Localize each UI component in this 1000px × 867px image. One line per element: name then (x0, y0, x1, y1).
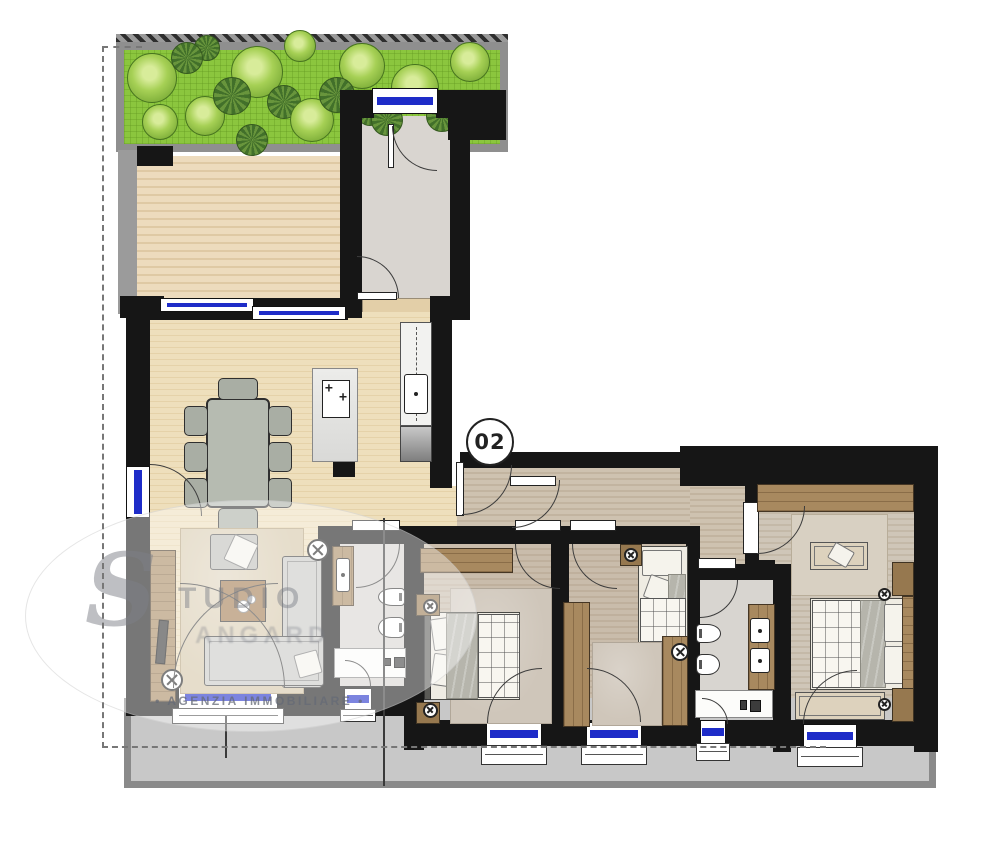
window-sill (481, 745, 547, 765)
kitchen-sink (404, 374, 428, 414)
dining-chair (268, 406, 292, 436)
wall (137, 146, 173, 166)
bathroom2-vanity (748, 604, 775, 690)
wall (745, 560, 775, 576)
entry-window (372, 88, 438, 114)
shower-control (750, 700, 761, 712)
spiky-tree-icon (236, 124, 268, 156)
wall (430, 298, 452, 488)
dining-chair (184, 406, 208, 436)
bedroom2-wardrobe (563, 602, 590, 727)
apartment-floor-plan: 02 S TUDIO ANGARD • AGENZIA IMMOBILIARE … (0, 0, 1000, 867)
watermark-logo-letter: S (85, 540, 157, 640)
bedroom3-nightstand (892, 688, 914, 722)
watermark-logo-text: TUDIO (178, 582, 306, 616)
wall (914, 446, 938, 752)
round-tree-icon (127, 53, 177, 103)
dining-chair (268, 442, 292, 472)
bathroom2-sink (750, 618, 770, 643)
round-tree-icon (284, 30, 316, 62)
window-sill (581, 745, 647, 765)
bathroom2-toilet (696, 654, 720, 675)
wall (333, 460, 355, 477)
wall (448, 90, 506, 140)
shower-control (740, 700, 747, 710)
wall (340, 90, 374, 118)
boundary-dash-line (102, 746, 826, 748)
unit-number-badge: 02 (466, 418, 514, 466)
round-tree-icon (450, 42, 490, 82)
deck-side-strip (118, 150, 137, 314)
lamp-icon (878, 588, 891, 601)
bedroom3-headboard (902, 596, 914, 690)
bedroom2-pillow (642, 550, 682, 576)
bedroom3-window (803, 724, 857, 748)
watermark-logo-line2: ANGARD (195, 622, 330, 650)
spiky-tree-icon (213, 77, 251, 115)
lamp-icon (671, 643, 689, 661)
wall (680, 446, 938, 486)
round-tree-icon (142, 104, 178, 140)
dining-chair (218, 378, 258, 400)
lamp-icon (423, 703, 438, 718)
lamp-icon (878, 698, 891, 711)
spiky-tree-icon (171, 42, 203, 74)
terrace-deck (137, 156, 340, 302)
dining-chair (184, 442, 208, 472)
dining-table (206, 398, 270, 508)
wall (126, 312, 150, 470)
window-sill (797, 747, 863, 767)
terrace-slider-right-window (252, 306, 346, 320)
door-leaf (698, 558, 736, 569)
boundary-dash-line (102, 46, 104, 748)
kitchen-appliance (400, 426, 432, 462)
cooktop (322, 380, 350, 418)
door-leaf (570, 520, 616, 531)
boundary-dash-line (102, 46, 142, 48)
bathroom2-sink (750, 648, 770, 673)
bedroom1-window (486, 722, 542, 746)
watermark-tagline: • AGENZIA IMMOBILIARE • (140, 694, 380, 708)
terrace-slider-left-window (160, 298, 254, 312)
wall (450, 140, 470, 318)
lamp-icon (624, 548, 638, 562)
bedroom3-blanket (860, 600, 886, 688)
bedroom3-nightstand (892, 562, 914, 596)
living-side-window (126, 466, 150, 518)
